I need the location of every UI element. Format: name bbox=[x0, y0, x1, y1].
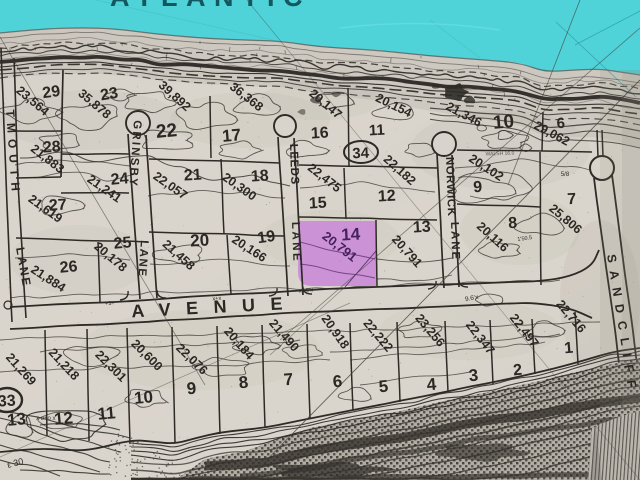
svg-text:11: 11 bbox=[97, 403, 117, 423]
svg-text:LEEDS: LEEDS bbox=[287, 144, 300, 185]
svg-text:16: 16 bbox=[310, 125, 329, 143]
svg-text:13: 13 bbox=[6, 409, 27, 430]
svg-text:9: 9 bbox=[186, 379, 197, 399]
svg-text:LANE: LANE bbox=[448, 222, 461, 262]
svg-text:11: 11 bbox=[368, 122, 385, 140]
svg-text:34: 34 bbox=[352, 145, 370, 163]
svg-text:10: 10 bbox=[133, 387, 154, 408]
svg-text:3: 3 bbox=[468, 366, 479, 386]
svg-text:6: 6 bbox=[332, 372, 343, 392]
svg-text:13: 13 bbox=[412, 219, 431, 237]
svg-text:18: 18 bbox=[250, 168, 269, 186]
svg-text:+3+: +3+ bbox=[105, 301, 115, 308]
svg-text:x+x: x+x bbox=[212, 296, 221, 303]
svg-text:33: 33 bbox=[0, 393, 16, 411]
svg-text:22: 22 bbox=[155, 120, 178, 143]
svg-text:2: 2 bbox=[512, 362, 522, 380]
svg-text:25: 25 bbox=[113, 234, 132, 252]
svg-text:7: 7 bbox=[283, 370, 294, 390]
svg-text:5/8: 5/8 bbox=[561, 172, 570, 178]
svg-text:8: 8 bbox=[508, 215, 518, 232]
svg-text:ATLANTIC: ATLANTIC bbox=[110, 0, 311, 12]
svg-text:5: 5 bbox=[378, 377, 389, 397]
svg-text:7: 7 bbox=[567, 191, 577, 208]
svg-text:x1.5'x: x1.5'x bbox=[299, 287, 314, 294]
svg-text:WALSH 16.0: WALSH 16.0 bbox=[486, 150, 515, 157]
svg-text:26: 26 bbox=[59, 258, 78, 276]
svg-text:12: 12 bbox=[377, 188, 396, 206]
svg-text:19: 19 bbox=[256, 228, 276, 247]
svg-text:1: 1 bbox=[563, 340, 573, 358]
svg-text:29: 29 bbox=[41, 83, 61, 102]
svg-text:8: 8 bbox=[238, 373, 249, 393]
svg-text:9: 9 bbox=[473, 179, 483, 196]
svg-text:12: 12 bbox=[53, 408, 74, 429]
svg-text:LANE: LANE bbox=[289, 222, 302, 264]
svg-text:17: 17 bbox=[221, 125, 242, 146]
svg-text:21: 21 bbox=[183, 167, 202, 185]
svg-text:10: 10 bbox=[492, 111, 515, 134]
svg-text:20: 20 bbox=[190, 231, 210, 251]
svg-text:NORWICK: NORWICK bbox=[443, 157, 457, 217]
svg-text:15: 15 bbox=[308, 195, 327, 213]
